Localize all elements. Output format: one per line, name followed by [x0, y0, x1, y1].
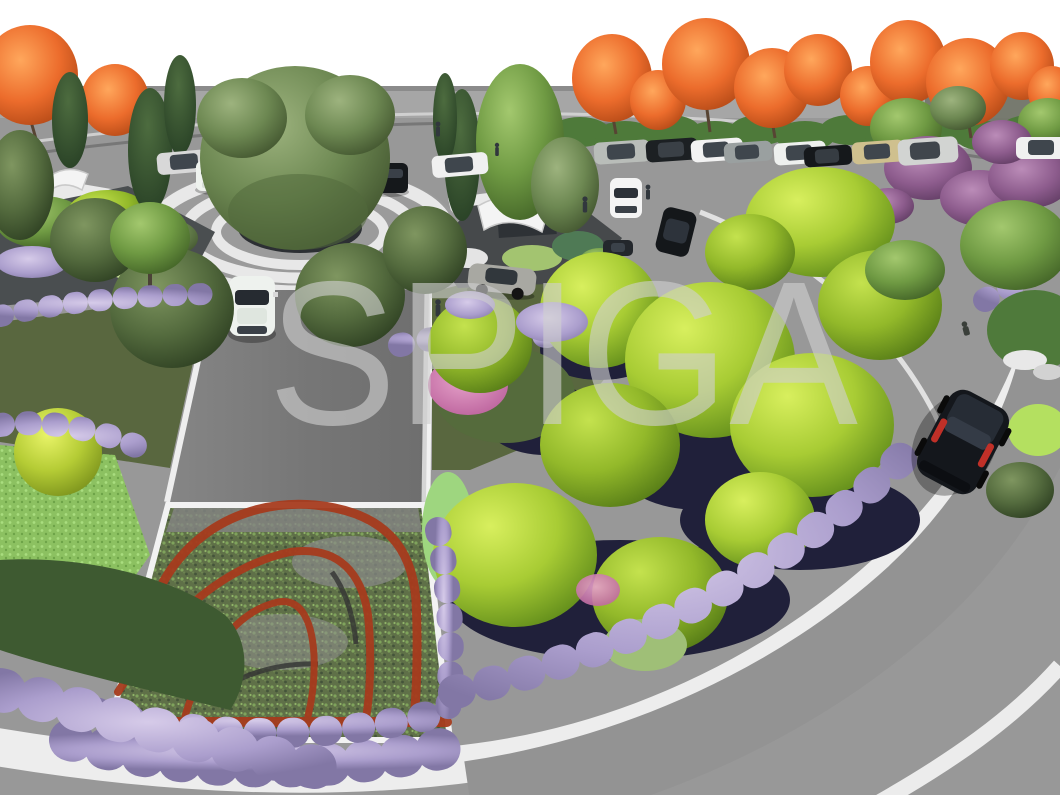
parked-van [897, 136, 959, 166]
parked-car [593, 139, 650, 165]
pedestrian-figure [436, 122, 441, 137]
pink-accent-bush [576, 574, 620, 606]
parked-car [1016, 137, 1060, 159]
parked-car [803, 144, 852, 167]
pedestrian-figure [646, 185, 651, 200]
parked-car [645, 137, 698, 163]
white-sedan-down [610, 178, 642, 218]
bed-path-patch [292, 536, 408, 588]
landscape-rendering: SPIGA [0, 0, 1060, 795]
parked-car [723, 140, 772, 163]
pedestrian-figure [582, 196, 587, 212]
parked-car [851, 139, 904, 165]
rendering-canvas: SPIGA [0, 0, 1060, 795]
pedestrian-figure [495, 143, 499, 156]
watermark-text: SPIGA [268, 239, 858, 468]
